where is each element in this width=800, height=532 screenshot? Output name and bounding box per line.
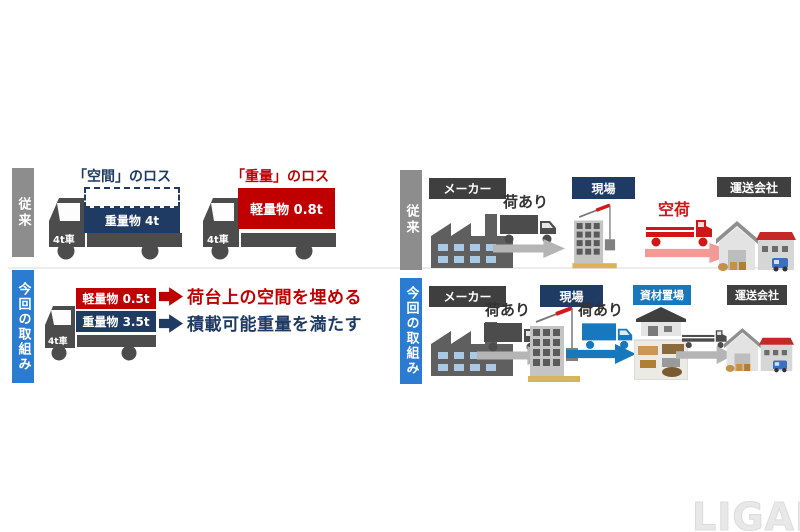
- truck1-cab-label: 4t車: [53, 233, 75, 246]
- right-initiative-side-label: 今回の取組み: [400, 278, 422, 384]
- light-cargo-05t-box: 軽量物 0.5t: [76, 288, 156, 309]
- right-conventional-side-label: 従来: [400, 170, 422, 270]
- light-cargo-08t-box: 軽量物 0.8t: [238, 188, 335, 229]
- construction-site-icon: [568, 200, 628, 270]
- point-meet-weight: 積載可能重量を満たす: [187, 310, 362, 335]
- navy-arrow-icon: [159, 314, 183, 333]
- carrier-label-2: 運送会社: [727, 285, 787, 305]
- carrier-warehouse-icon: [716, 220, 796, 272]
- site-label: 現場: [572, 177, 635, 199]
- heavy-cargo-35t-box: 重量物 3.5t: [76, 311, 156, 332]
- truck2-cab-label: 4t車: [207, 233, 229, 246]
- material-yard-icon: [634, 306, 688, 380]
- infographic-canvas: 従来 「空間」のロス 4t車 重量物 4t 「重量」のロス 4t車 軽量物 0.…: [0, 0, 800, 532]
- material-yard-label: 資材置場: [633, 285, 691, 305]
- loaded-leg2-label: 荷あり: [578, 299, 623, 320]
- loaded-leg1-label: 荷あり: [503, 191, 548, 212]
- truck3-cab-label: 4t車: [48, 335, 68, 347]
- space-loss-label: 「空間」のロス: [73, 166, 171, 186]
- ligare-watermark: LIGARE: [692, 495, 800, 532]
- loaded-leg1-label-2: 荷あり: [485, 299, 530, 320]
- red-arrow-icon: [159, 287, 183, 306]
- heavy-cargo-4t-box: 重量物 4t: [84, 208, 180, 233]
- empty-space-dashed-box: [84, 187, 180, 208]
- left-initiative-side-label: 今回の取組み: [12, 270, 34, 383]
- carrier-label: 運送会社: [717, 177, 791, 197]
- gray-arrow-icon: [493, 239, 565, 258]
- point-fill-space: 荷台上の空間を埋める: [187, 283, 362, 308]
- weight-loss-label: 「重量」のロス: [231, 166, 329, 186]
- blue-arrow-icon: [566, 344, 636, 364]
- maker-label: メーカー: [429, 178, 506, 199]
- carrier-warehouse-icon-2: [724, 326, 794, 374]
- left-conventional-side-label: 従来: [12, 168, 34, 257]
